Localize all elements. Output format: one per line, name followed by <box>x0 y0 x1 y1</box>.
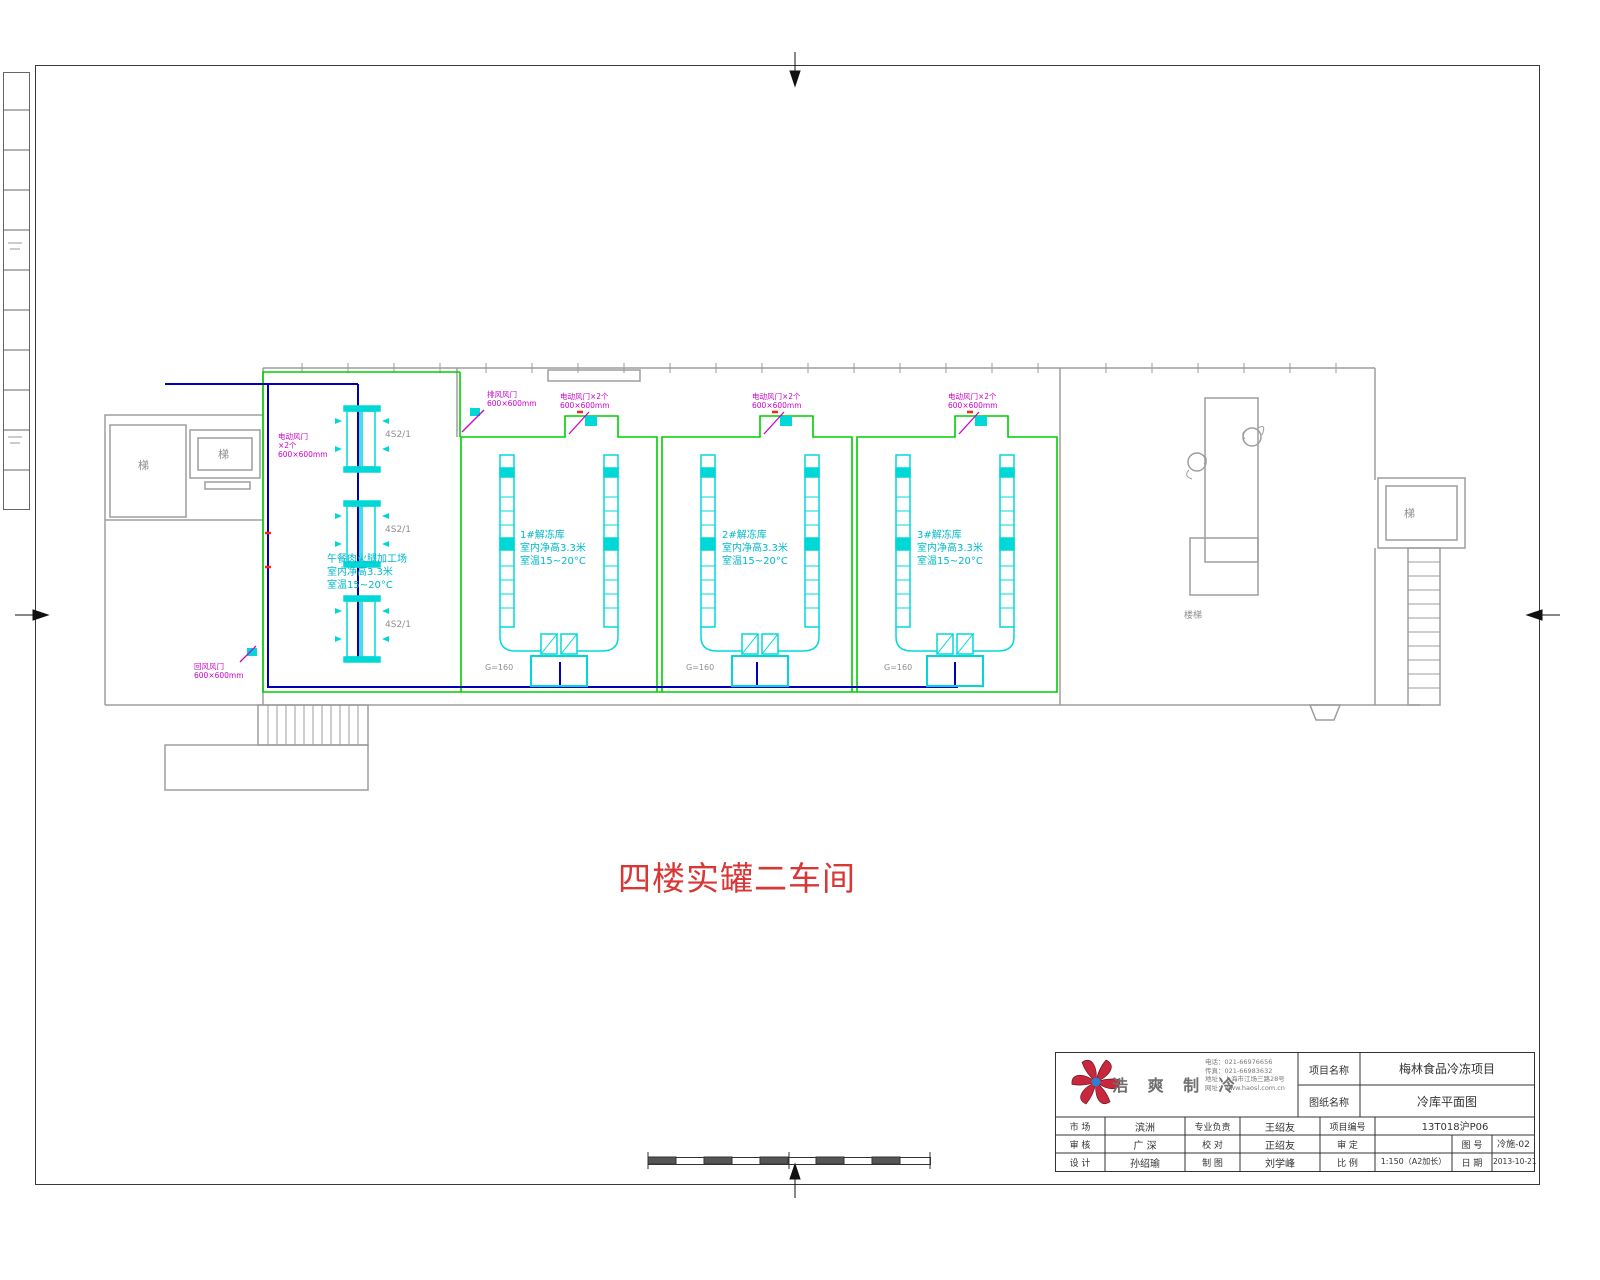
tb-r2c3-label: 审 定 <box>1321 1138 1374 1151</box>
tb-r3c1-value: 孙绍瑜 <box>1105 1155 1185 1170</box>
tb-drawing-no-label: 图 号 <box>1453 1138 1491 1151</box>
duct-system-room1 <box>500 455 618 686</box>
tb-r1c2-value: 王绍友 <box>1241 1119 1319 1134</box>
tb-r2c1-label: 审 核 <box>1056 1138 1104 1151</box>
tb-scale-label: 比 例 <box>1321 1156 1374 1169</box>
tb-r3c1-label: 设 计 <box>1056 1156 1104 1169</box>
tb-r1c3-label: 项目编号 <box>1321 1120 1374 1133</box>
vent-annotation-left: 电动风门 ×2个 600×600mm <box>278 432 328 459</box>
vent-annotation-top-2: 电动风门×2个 600×600mm <box>752 392 802 410</box>
tb-r1c1-label: 市 场 <box>1056 1120 1104 1133</box>
vent-marks <box>240 410 979 662</box>
duct-flow-label-1: G=160 <box>485 663 513 672</box>
tb-date-label: 日 期 <box>1453 1156 1491 1169</box>
tb-r3c2-value: 刘学峰 <box>1241 1155 1319 1170</box>
cad-sheet: 梯 梯 梯 楼梯 午餐肉火腿加工场 室内净高3.3米 室温15~20°C 1#解… <box>0 0 1600 1280</box>
room-name: 1#解冻库 <box>520 529 586 542</box>
room-name: 午餐肉火腿加工场 <box>327 553 407 566</box>
room-name: 2#解冻库 <box>722 529 788 542</box>
duct-flow-label-2: G=160 <box>686 663 714 672</box>
air-cooler-unit-1 <box>335 406 389 472</box>
fold-marks <box>15 52 1560 1198</box>
company-contact: 电话：021-66976656 传真：021-66983632 地址：上海市江场… <box>1205 1058 1297 1092</box>
project-name-value: 梅林食品冷冻项目 <box>1362 1060 1532 1077</box>
room-name: 3#解冻库 <box>917 529 983 542</box>
cooling-equipment <box>247 406 1014 686</box>
drawing-frame <box>36 66 1540 1185</box>
room-temp: 室温15~20°C <box>722 555 788 568</box>
room-temp: 室温15~20°C <box>520 555 586 568</box>
room-height: 室内净高3.3米 <box>520 542 586 555</box>
tb-drawing-no-value: 冷施-02 <box>1493 1137 1534 1150</box>
tb-r2c2-label: 校 对 <box>1186 1138 1239 1151</box>
fan-coil-label-3: 4S2/1 <box>385 620 411 630</box>
stair-label-right: 梯 <box>1404 505 1415 521</box>
tb-r2c2-value: 正绍友 <box>1241 1137 1319 1152</box>
room-height: 室内净高3.3米 <box>917 542 983 555</box>
tb-r2c1-value: 广 深 <box>1105 1137 1185 1152</box>
vent-annotation-top-3: 电动风门×2个 600×600mm <box>948 392 998 410</box>
duct-flow-label-3: G=160 <box>884 663 912 672</box>
freezer-room-2-label: 2#解冻库 室内净高3.3米 室温15~20°C <box>722 529 788 568</box>
room-temp: 室温15~20°C <box>917 555 983 568</box>
contact-fax: 传真：021-66983632 <box>1205 1067 1297 1076</box>
freezer-room-1-label: 1#解冻库 室内净高3.3米 室温15~20°C <box>520 529 586 568</box>
freezer-room-3-label: 3#解冻库 室内净高3.3米 室温15~20°C <box>917 529 983 568</box>
tb-date-value: 2013-10-21 <box>1493 1157 1534 1166</box>
red-marks <box>265 412 973 567</box>
tb-r1c2-label: 专业负责 <box>1186 1120 1239 1133</box>
vent-annotation-corner: 排风风门 600×600mm <box>487 390 537 408</box>
room-height: 室内净高3.3米 <box>722 542 788 555</box>
tb-r1c3-value: 13T018沪P06 <box>1376 1118 1534 1133</box>
left-revision-strip <box>3 73 30 510</box>
stair-label-mid: 楼梯 <box>1184 608 1202 621</box>
contact-web: 网址：www.haosl.com.cn <box>1205 1084 1297 1093</box>
fan-coil-label-1: 4S2/1 <box>385 430 411 440</box>
processing-room-label: 午餐肉火腿加工场 室内净高3.3米 室温15~20°C <box>327 553 407 592</box>
drawing-title: 四楼实罐二车间 <box>618 852 856 900</box>
contact-address: 地址：上海市江场三路28号 <box>1205 1075 1297 1084</box>
contact-phone: 电话：021-66976656 <box>1205 1058 1297 1067</box>
walls <box>105 363 1465 790</box>
scale-bar <box>648 1152 931 1169</box>
tb-r3c2-label: 制 图 <box>1186 1156 1239 1169</box>
room-height: 室内净高3.3米 <box>327 566 407 579</box>
stair-label-left-b: 梯 <box>218 446 229 462</box>
drawing-name-label: 图纸名称 <box>1300 1094 1358 1109</box>
tb-r1c1-value: 滨洲 <box>1105 1119 1185 1134</box>
vent-annotation-top-1: 电动风门×2个 600×600mm <box>560 392 610 410</box>
fan-coil-label-2: 4S2/1 <box>385 525 411 535</box>
drawing-name-value: 冷库平面图 <box>1362 1093 1532 1110</box>
air-cooler-unit-3 <box>335 596 389 662</box>
duct-system-room3 <box>896 455 1014 686</box>
plan-canvas <box>0 0 1600 1280</box>
duct-system-room2 <box>701 455 819 686</box>
vent-annotation-bottom: 回风风门 600×600mm <box>194 662 244 680</box>
stair-label-left-a: 梯 <box>138 457 149 473</box>
tb-scale-value: 1:150（A2加长） <box>1376 1156 1451 1167</box>
room-temp: 室温15~20°C <box>327 579 407 592</box>
project-name-label: 项目名称 <box>1300 1062 1358 1077</box>
